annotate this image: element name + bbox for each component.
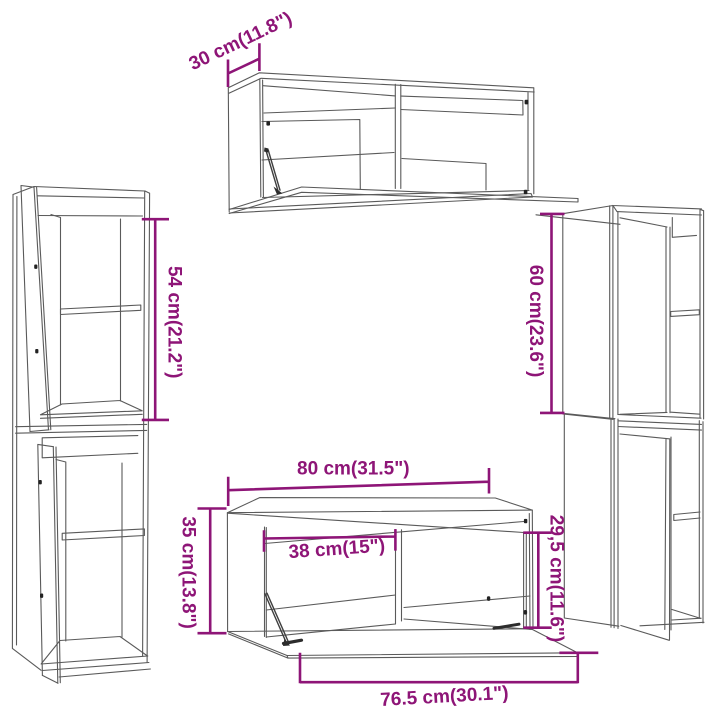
svg-text:35 cm(13.8"): 35 cm(13.8") — [178, 516, 199, 629]
svg-text:38 cm(15"): 38 cm(15") — [288, 535, 386, 563]
svg-text:54 cm(21.2"): 54 cm(21.2") — [163, 266, 184, 379]
svg-text:30 cm(11.8"): 30 cm(11.8") — [186, 8, 296, 75]
svg-text:60 cm(23.6"): 60 cm(23.6") — [525, 265, 546, 378]
svg-text:76.5 cm(30.1"): 76.5 cm(30.1") — [380, 683, 509, 711]
svg-text:80 cm(31.5"): 80 cm(31.5") — [297, 458, 410, 479]
svg-text:29,5 cm(11.6"): 29,5 cm(11.6") — [546, 515, 567, 643]
